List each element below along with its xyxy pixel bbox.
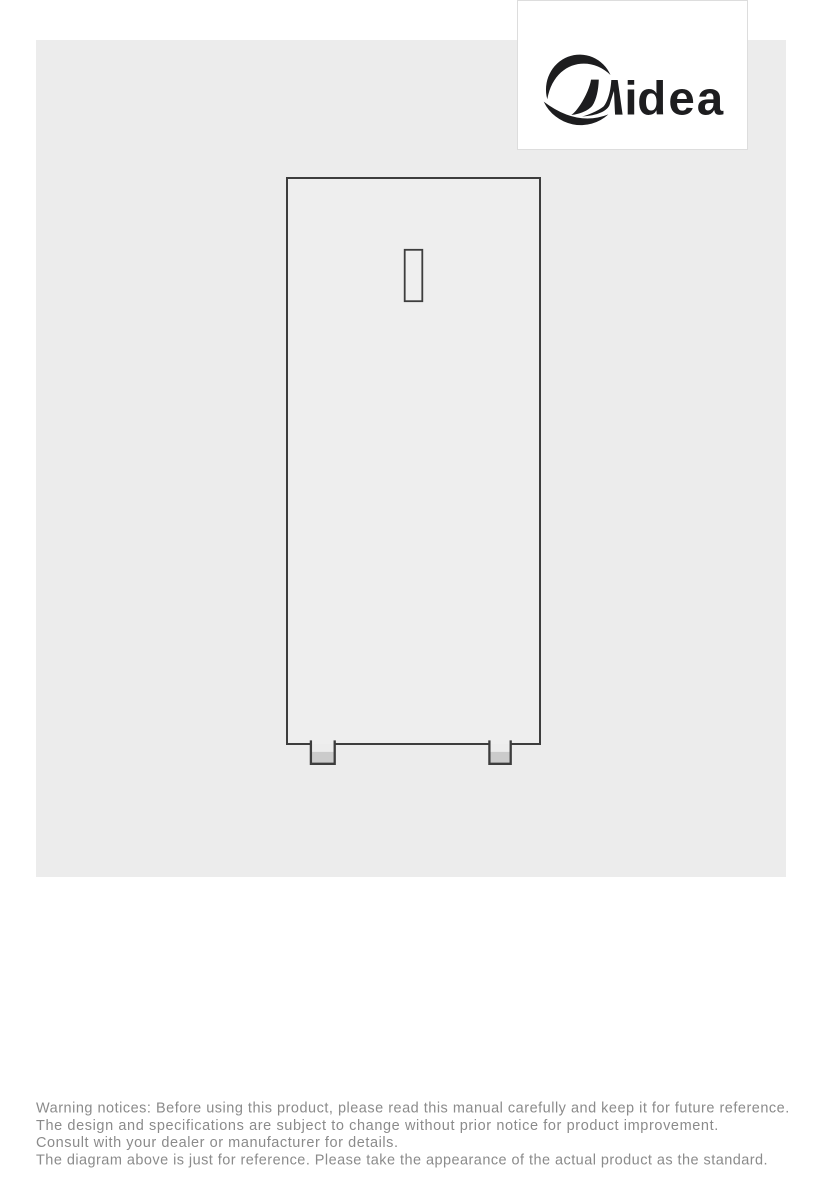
svg-text:idea: idea bbox=[624, 73, 723, 126]
svg-text:The design and specifications: The design and specifications are subjec… bbox=[36, 1118, 719, 1134]
svg-text:The diagram above is just for: The diagram above is just for reference.… bbox=[36, 1152, 768, 1168]
svg-text:Warning notices: Before using: Warning notices: Before using this produ… bbox=[36, 1101, 790, 1117]
svg-text:Consult with your dealer or ma: Consult with your dealer or manufacturer… bbox=[36, 1135, 399, 1151]
